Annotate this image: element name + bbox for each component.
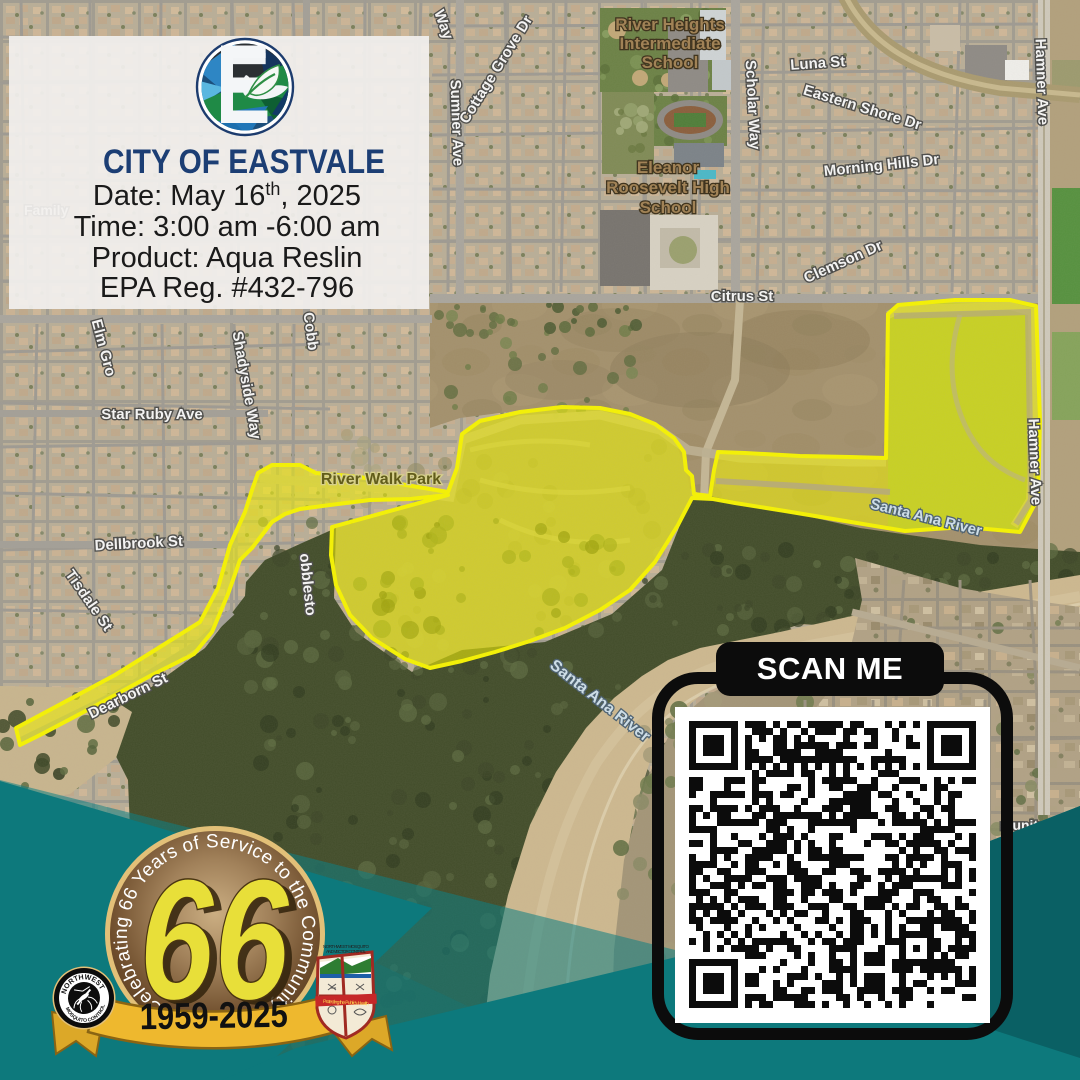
svg-text:CITY OF EASTVALE: CITY OF EASTVALE: [103, 143, 385, 181]
svg-text:Product: Aqua Reslin: Product: Aqua Reslin: [92, 242, 363, 274]
svg-text:SCAN ME: SCAN ME: [757, 651, 903, 686]
svg-text:1959-2025: 1959-2025: [139, 994, 288, 1038]
svg-text:Date: May 16th, 2025: Date: May 16th, 2025: [93, 179, 361, 212]
svg-text:EPA Reg. #432-796: EPA Reg. #432-796: [100, 272, 354, 304]
svg-text:AND VECTOR CONTROL: AND VECTOR CONTROL: [326, 949, 366, 954]
svg-text:Time: 3:00 am -6:00 am: Time: 3:00 am -6:00 am: [74, 211, 381, 243]
